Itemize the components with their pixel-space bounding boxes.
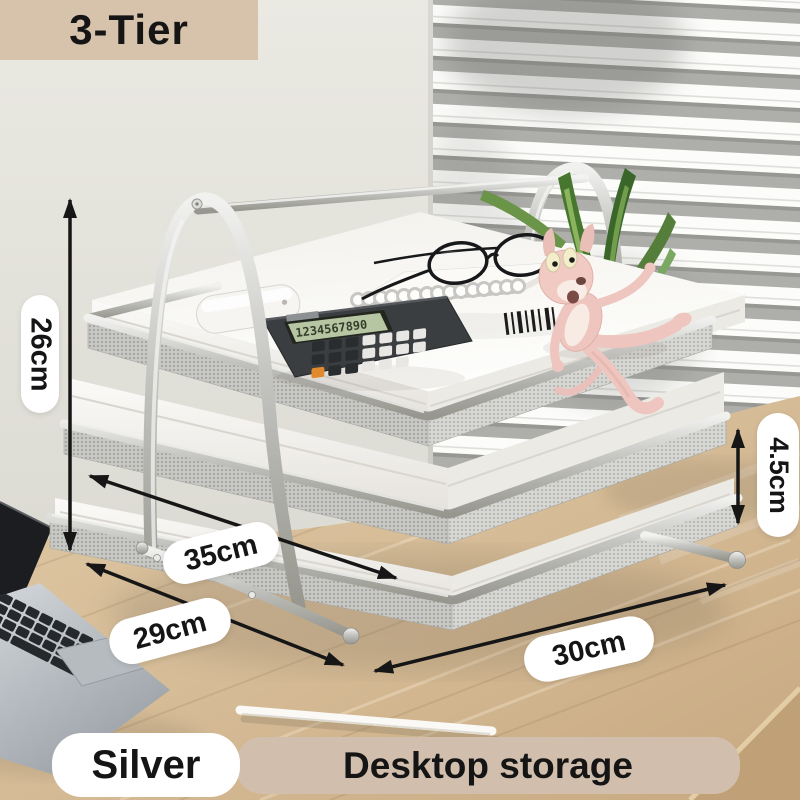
category-banner: Desktop storage (236, 737, 740, 794)
dimension-label-tier-gap: 4.5cm (757, 413, 799, 537)
color-pill: Silver (52, 733, 240, 797)
color-label: Silver (92, 743, 201, 788)
tier-badge: 3-Tier (0, 0, 258, 60)
product-photo: 1234567890 (0, 0, 800, 800)
category-label: Desktop storage (343, 745, 633, 787)
tier-badge-label: 3-Tier (69, 6, 189, 54)
scene: 1234567890 (0, 0, 800, 800)
dimension-label-height: 26cm (21, 295, 59, 413)
